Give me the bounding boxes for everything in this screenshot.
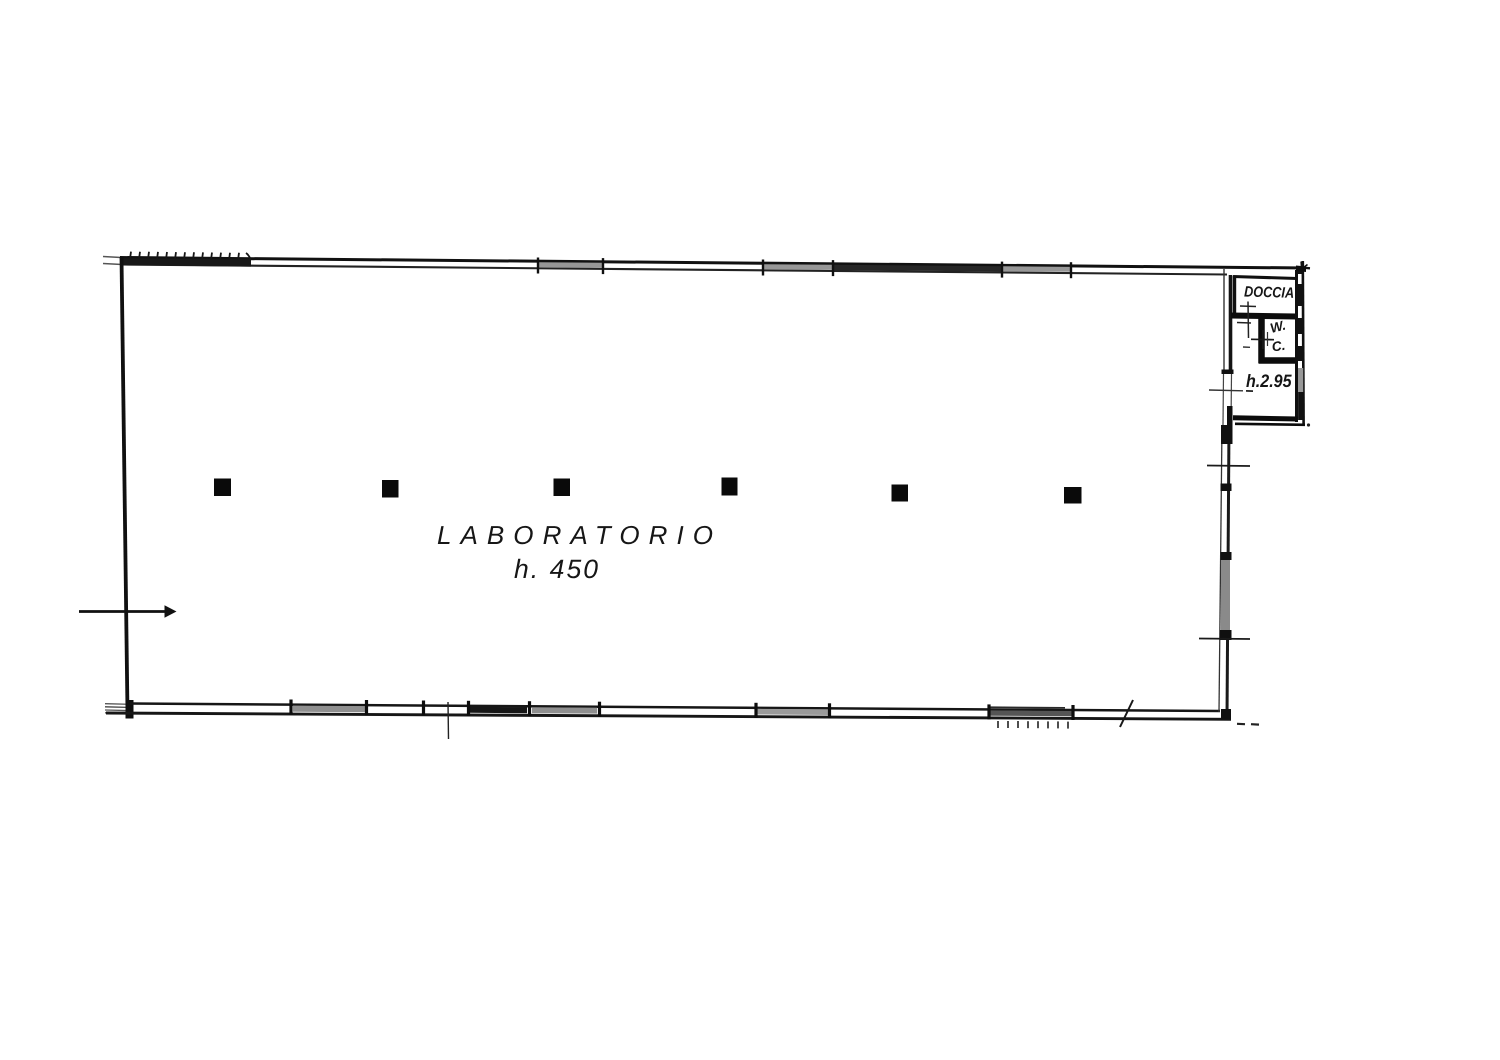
svg-text:C.: C. bbox=[1271, 338, 1286, 355]
svg-text:h.2.95: h.2.95 bbox=[1246, 371, 1292, 391]
svg-text:DOCCIA: DOCCIA bbox=[1244, 284, 1294, 302]
svg-text:W.: W. bbox=[1269, 318, 1288, 336]
svg-text:LABORATORIO: LABORATORIO bbox=[437, 520, 713, 550]
svg-text:h. 450: h. 450 bbox=[514, 554, 598, 584]
